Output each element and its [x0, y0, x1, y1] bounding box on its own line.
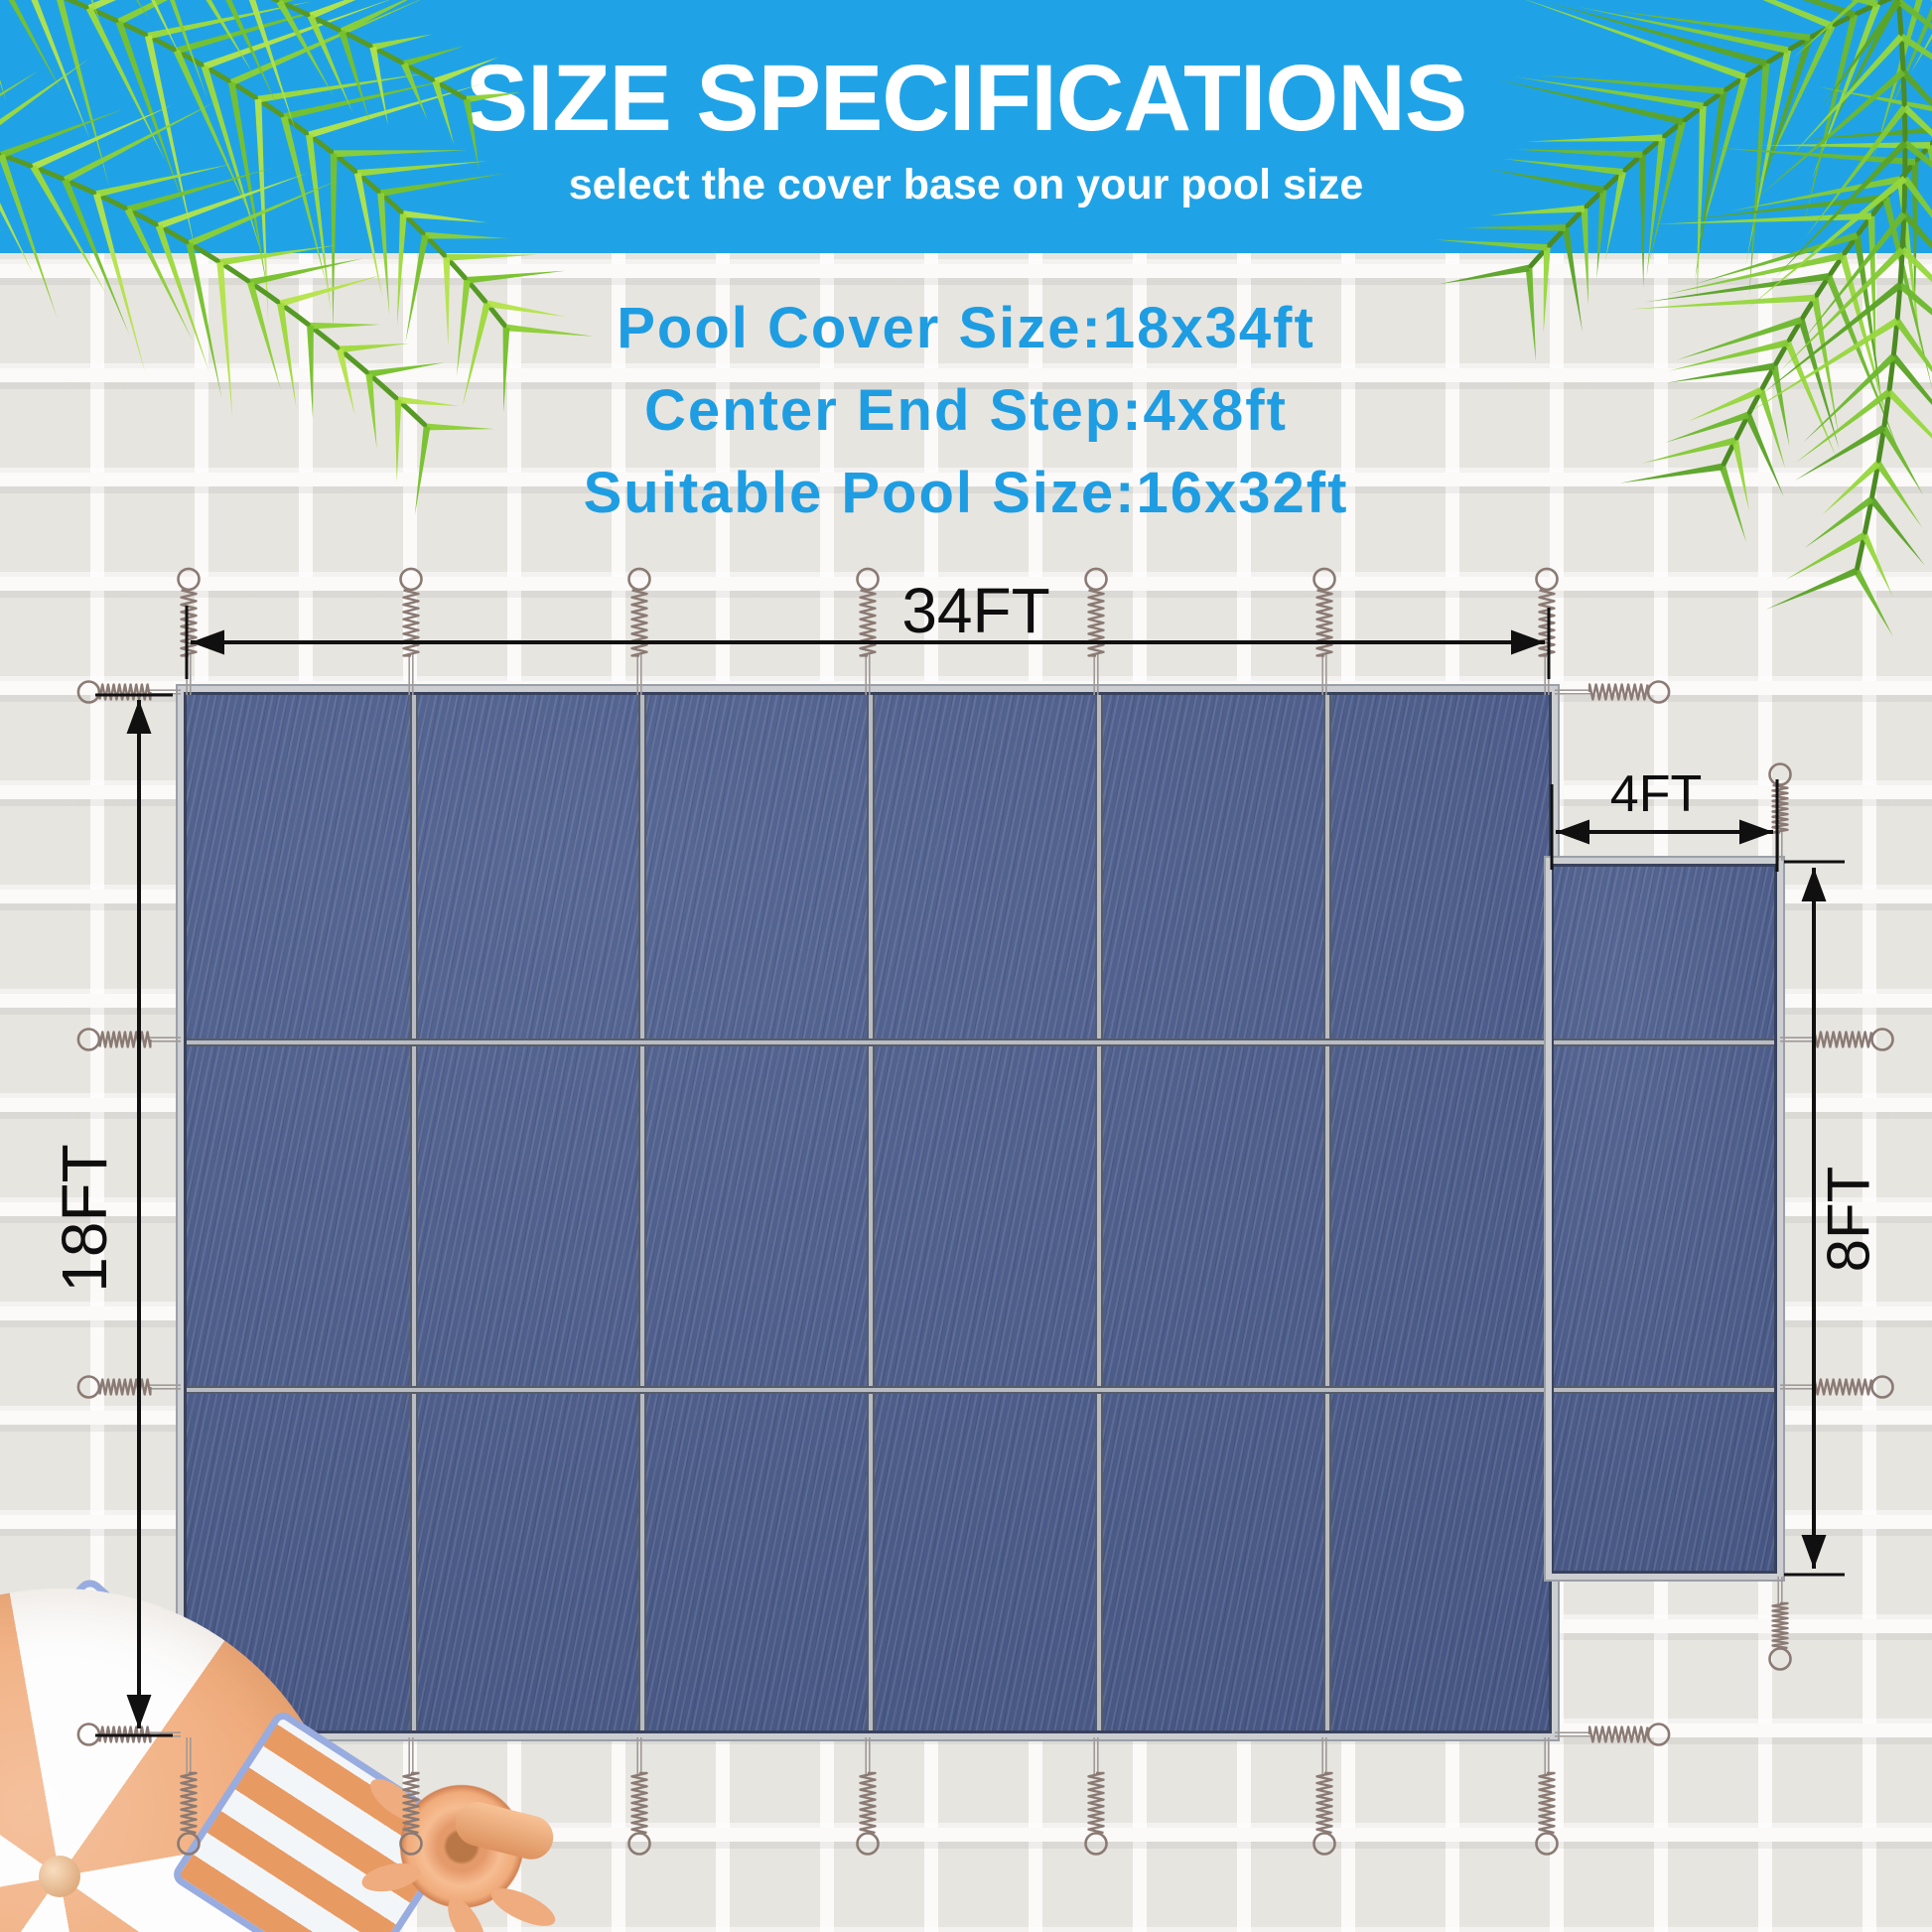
spec-line-step-size: Center End Step:4x8ft — [0, 369, 1932, 452]
pool-cover-step-panel — [1552, 864, 1777, 1574]
pool-float-icon — [377, 1767, 546, 1932]
cover-strap-vertical — [1095, 695, 1103, 1730]
cover-strap-horizontal — [1554, 1386, 1774, 1394]
cover-strap-horizontal — [187, 1038, 1549, 1046]
dimension-label-cover-width: 34FT — [901, 574, 1049, 647]
page-subtitle: select the cover base on your pool size — [569, 161, 1364, 209]
cover-strap-vertical — [867, 695, 875, 1730]
cover-strap-horizontal — [1554, 1038, 1774, 1046]
spec-line-cover-size: Pool Cover Size:18x34ft — [0, 287, 1932, 369]
cover-strap-vertical — [638, 695, 646, 1730]
page-title: SIZE SPECIFICATIONS — [466, 50, 1467, 149]
umbrella-hub — [39, 1856, 80, 1897]
dimension-label-step-width: 4FT — [1610, 764, 1702, 824]
spec-text-block: Pool Cover Size:18x34ft Center End Step:… — [0, 287, 1932, 534]
dimension-label-cover-height: 18FT — [48, 1144, 121, 1292]
cover-strap-vertical — [1323, 695, 1331, 1730]
pool-cover-main-panel — [184, 692, 1552, 1733]
spec-line-pool-size: Suitable Pool Size:16x32ft — [0, 452, 1932, 534]
product-size-spec-image: SIZE SPECIFICATIONS select the cover bas… — [0, 0, 1932, 1932]
dimension-label-step-height: 8FT — [1815, 1167, 1883, 1273]
header-banner: SIZE SPECIFICATIONS select the cover bas… — [0, 0, 1932, 253]
cover-strap-horizontal — [187, 1386, 1549, 1394]
cover-strap-vertical — [410, 695, 418, 1730]
